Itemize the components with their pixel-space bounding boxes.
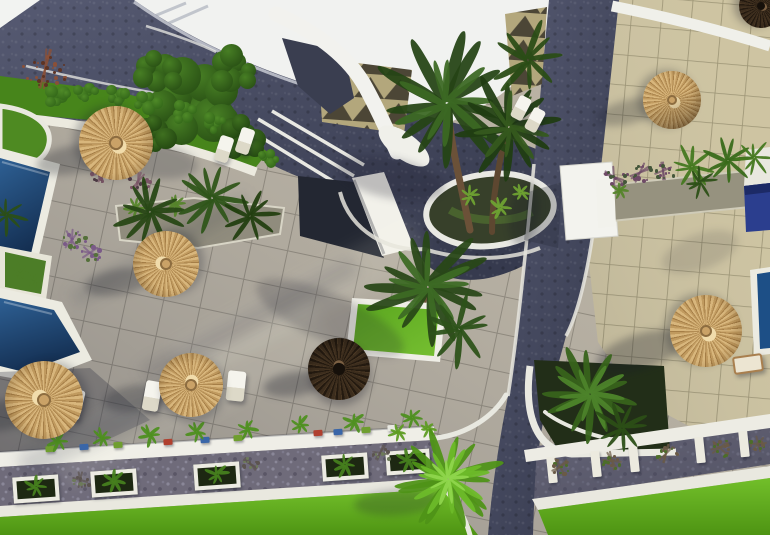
accent-planter-block	[113, 442, 122, 449]
white-divider	[694, 437, 706, 464]
straw-thatch-parasol	[631, 59, 713, 141]
parasol-hub	[159, 257, 173, 271]
accent-planter-block	[333, 429, 342, 436]
parasol-hub	[107, 134, 126, 153]
white-divider	[628, 446, 640, 473]
accent-planter-block	[79, 444, 88, 451]
parasol-hub	[34, 390, 53, 409]
parasol-hub	[755, 0, 766, 11]
sun-lounger	[732, 353, 764, 375]
accent-planter-block	[313, 430, 322, 437]
parasol-hub	[184, 378, 198, 392]
resort-aerial-render: Aerial 3D rendering of a resort pool cou…	[0, 0, 770, 535]
cast-shadow	[332, 147, 448, 209]
accent-planter-block	[361, 427, 370, 434]
parasol-hub	[697, 322, 715, 340]
white-divider	[590, 451, 602, 478]
white-divider	[738, 431, 750, 458]
dark-thatch-parasol	[730, 0, 770, 37]
accent-planter-block	[163, 439, 172, 446]
cast-shadow	[656, 221, 743, 282]
parasol-hub	[332, 362, 346, 376]
sun-lounger	[225, 370, 246, 402]
objects-layer	[0, 0, 770, 535]
